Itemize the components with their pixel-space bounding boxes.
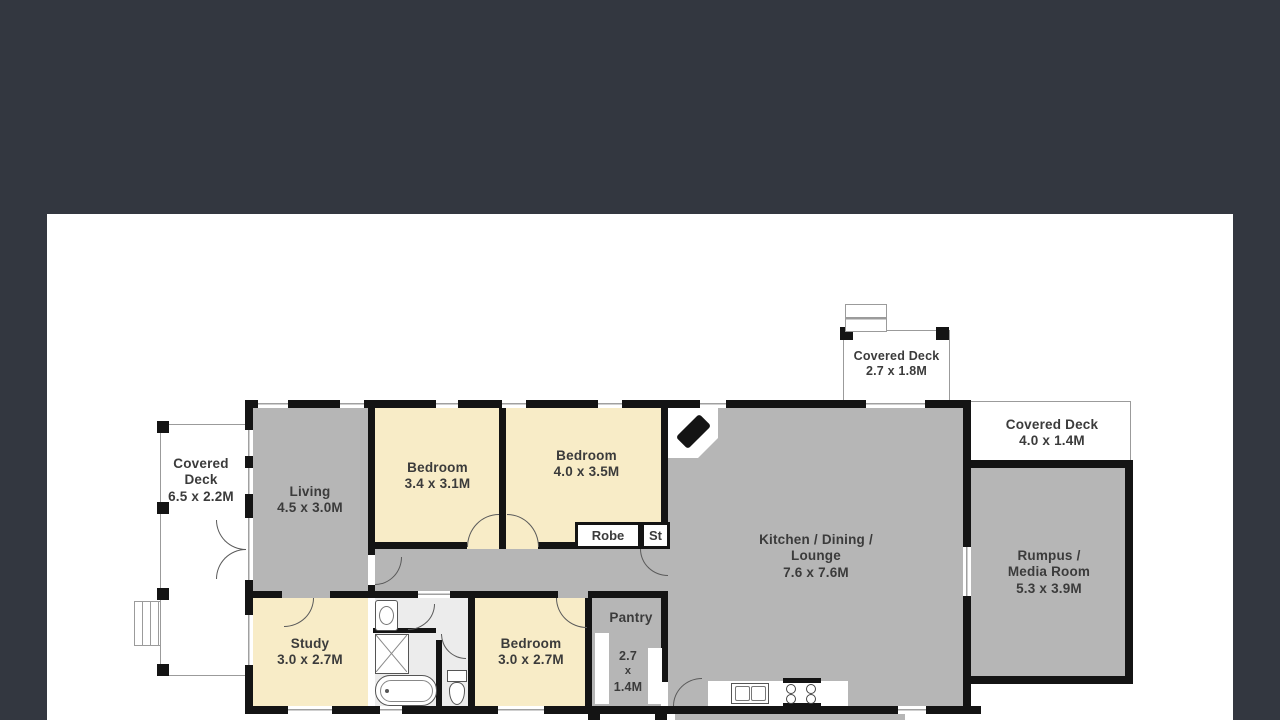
window: [340, 400, 364, 408]
bedroom-front-right-label: Bedroom 4.0 x 3.5M: [509, 448, 664, 481]
french-door-opening: [245, 518, 253, 580]
wall-living-bed: [368, 400, 375, 555]
steps-icon: [134, 601, 161, 646]
wall-bath-bed: [468, 591, 475, 714]
window: [498, 706, 544, 714]
robe-closet: Robe: [575, 522, 641, 549]
window: [598, 400, 622, 408]
vanity-sink-icon: [375, 600, 398, 631]
rumpus-label: Rumpus / Media Room 5.3 x 3.9M: [973, 548, 1125, 597]
wall-hall-bottom: [588, 591, 668, 598]
wall-wc: [436, 640, 442, 714]
viewer-backdrop: Robe St: [0, 0, 1280, 720]
store-label: St: [649, 528, 662, 543]
living-label: Living 4.5 x 3.0M: [254, 484, 366, 517]
study-label: Study 3.0 x 2.7M: [254, 636, 366, 669]
wall-rumpus-right: [1125, 460, 1133, 684]
entry-stub: [588, 714, 600, 720]
rumpus-opening: [963, 547, 971, 596]
kitchen-label: Kitchen / Dining / Lounge 7.6 x 7.6M: [726, 532, 906, 581]
window: [258, 400, 288, 408]
wall-hall-bottom: [245, 591, 282, 598]
wall-bedrooms-bottom: [538, 542, 575, 549]
pantry-label: Pantry: [600, 610, 662, 626]
wall-rumpus-bottom: [963, 676, 1133, 684]
deck-right-label: Covered Deck 4.0 x 1.4M: [977, 417, 1127, 450]
shower-icon: [375, 634, 409, 674]
wall-rumpus-top: [963, 460, 1133, 468]
wall-hall-bottom: [450, 591, 558, 598]
deck-post: [157, 588, 169, 600]
window: [502, 400, 526, 408]
floor-plan: Robe St: [0, 0, 1280, 720]
window: [436, 400, 458, 408]
window: [380, 706, 402, 714]
window: [700, 400, 726, 408]
wall-bedrooms-bottom: [374, 542, 467, 549]
entry-stub: [655, 714, 667, 720]
deck-left-label: Covered Deck 6.5 x 2.2M: [147, 456, 255, 505]
robe-label: Robe: [592, 528, 625, 543]
wall-bed-bed: [499, 408, 506, 549]
toilet-icon: [445, 670, 469, 706]
deck-top-label: Covered Deck 2.7 x 1.8M: [845, 349, 948, 380]
pantry-dims-label: 2.7 x 1.4M: [600, 648, 656, 695]
bedroom-front-left-label: Bedroom 3.4 x 3.1M: [377, 460, 498, 493]
wall-bottom: [245, 706, 981, 714]
window: [245, 430, 253, 456]
window: [898, 706, 926, 714]
cooktop-icon: [783, 678, 821, 706]
kitchen-counter: [708, 681, 848, 706]
wall-pantry-kitchen: [661, 598, 668, 682]
deck-post: [157, 421, 169, 433]
deck-post: [157, 664, 169, 676]
wall-hall-bottom: [330, 591, 418, 598]
window: [288, 706, 332, 714]
deck-post: [936, 327, 949, 340]
slider-door: [866, 400, 925, 408]
bedroom-rear-label: Bedroom 3.0 x 2.7M: [477, 636, 585, 669]
kitchen-sink-icon: [731, 683, 769, 704]
entry-porch: [675, 714, 905, 720]
steps-icon: [845, 304, 887, 332]
window: [245, 615, 253, 665]
store-closet: St: [641, 522, 670, 549]
bathtub-icon: [375, 675, 437, 706]
bath-slider-door: [418, 591, 450, 598]
